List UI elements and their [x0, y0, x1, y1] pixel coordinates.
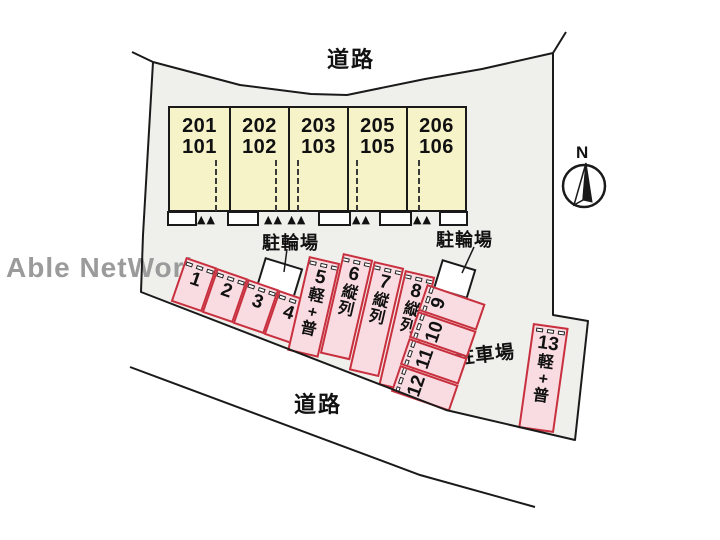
building: 201101202102203103205105206106 — [168, 106, 467, 212]
road-label-bottom: 道路 — [294, 387, 342, 419]
site-plan: Able NetWork 201101202102203103205105206… — [0, 0, 720, 540]
entrance-porch — [318, 211, 351, 226]
parking-space-type-label: 縦列 — [367, 292, 390, 328]
building-unit: 206106 — [406, 108, 465, 210]
unit-number: 203103 — [290, 116, 347, 159]
entrance-path-dashed-line — [215, 160, 217, 211]
entrance-steps-icon: ▲▲ — [352, 214, 371, 225]
unit-number: 202102 — [231, 116, 288, 159]
parking-space-number: 6 — [347, 264, 362, 285]
entrance-path-dashed-line — [418, 160, 420, 211]
parking-space-number: 5 — [313, 267, 328, 288]
unit-number: 206106 — [408, 116, 465, 159]
parking-space-number: 13 — [536, 333, 560, 355]
parking-space-number: 1 — [187, 269, 203, 290]
building-unit: 201101 — [170, 108, 229, 210]
north-label: N — [576, 143, 588, 163]
bike-parking-label-left: 駐輪場 — [262, 229, 319, 255]
parking-space-type-label: 軽+普 — [532, 354, 555, 406]
building-unit: 202102 — [229, 108, 288, 210]
unit-number: 201101 — [170, 116, 229, 159]
parking-space-number: 12 — [404, 372, 429, 398]
parking-space-number: 7 — [378, 272, 393, 293]
entrance-steps-icon: ▲▲ ▲▲ — [264, 214, 306, 225]
entrance-porch — [227, 211, 259, 226]
parking-space-number: 11 — [413, 346, 438, 371]
unit-number: 205105 — [349, 116, 406, 159]
parking-space-type-label: 軽+普 — [299, 287, 326, 340]
parking-space-type-label: 縦列 — [336, 284, 359, 320]
parking-space-number: 2 — [218, 280, 234, 301]
entrance-path-dashed-line — [275, 160, 277, 211]
entrance-porch — [439, 211, 468, 226]
entrance-porch — [167, 211, 197, 226]
entrance-steps-icon: ▲▲ — [413, 214, 432, 225]
entrance-steps-icon: ▲▲ — [197, 214, 216, 225]
entrance-path-dashed-line — [297, 160, 299, 211]
entrance-path-dashed-line — [356, 160, 358, 211]
entrance-porch — [379, 211, 412, 226]
road-label-top: 道路 — [327, 42, 375, 74]
parking-space-number: 9 — [428, 295, 449, 311]
watermark: Able NetWork — [6, 252, 201, 284]
parking-space-number: 10 — [422, 318, 447, 344]
parking-space: 13軽+普 — [518, 323, 568, 433]
bike-parking-label-right: 駐輪場 — [436, 226, 493, 252]
north-compass-icon — [563, 163, 605, 207]
parking-space-number: 3 — [249, 291, 265, 312]
